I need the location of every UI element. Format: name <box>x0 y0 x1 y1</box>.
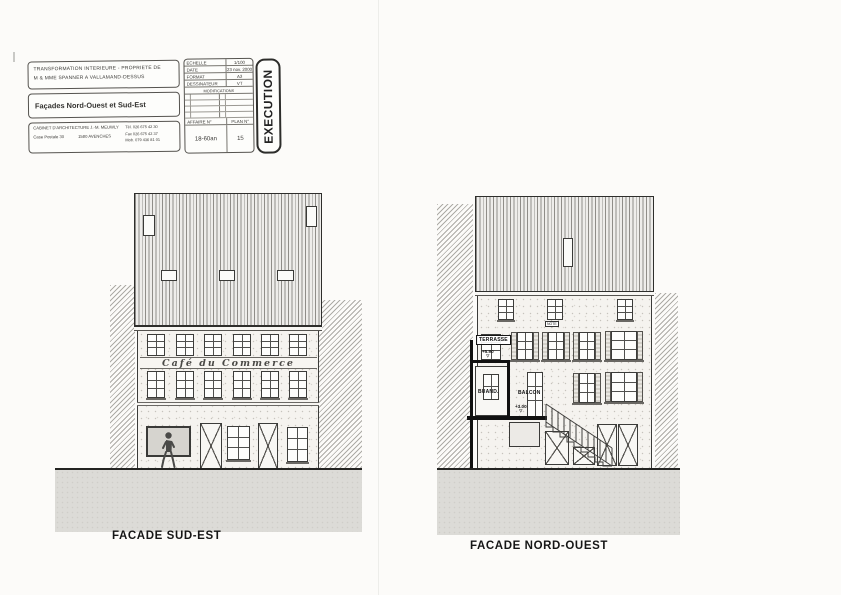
format-label: FORMAT <box>185 74 226 80</box>
scan-mark <box>13 52 15 62</box>
shutter <box>564 332 570 360</box>
scanned-plan-sheet: TRANSFORMATION INTERIEURE - PROPRIETE DE… <box>0 0 841 595</box>
window <box>287 427 308 462</box>
window <box>233 334 251 356</box>
window <box>233 371 251 398</box>
window <box>176 371 194 398</box>
ground-area <box>437 470 680 535</box>
window-sill <box>232 398 252 400</box>
window <box>483 374 499 400</box>
window <box>498 299 514 320</box>
shuttered-window <box>511 332 539 360</box>
draftsman-label: DESSINATEUR <box>185 81 226 87</box>
staircase <box>541 396 615 470</box>
window-sill <box>572 360 602 362</box>
window-sill <box>510 360 540 362</box>
window <box>611 331 637 360</box>
execution-stamp-text: EXECUTION <box>261 69 276 144</box>
date-label: DATE <box>185 67 226 73</box>
shutter <box>533 332 539 360</box>
buanderie-label: BUAND. <box>478 389 499 395</box>
barn-door <box>618 424 638 466</box>
format-value: A3 <box>226 73 253 79</box>
window <box>289 371 307 398</box>
window <box>517 332 533 360</box>
title-block: TRANSFORMATION INTERIEURE - PROPRIETE DE… <box>23 54 282 159</box>
facade-label: FACADE NORD-OUEST <box>470 540 608 552</box>
architect-mob: Mob. 079 436 81 01 <box>125 137 175 144</box>
terrasse-label: TERRASSE <box>476 335 511 345</box>
window <box>261 371 279 398</box>
cafe-sign-text: Café du Commerce <box>162 358 295 369</box>
ground-window <box>509 422 540 447</box>
entrance-door <box>258 423 278 469</box>
roof <box>134 193 322 326</box>
window-sill <box>175 398 195 400</box>
terrasse-level-mark: +5.90 ▽ <box>482 349 494 357</box>
project-line2: M & MME SPANNER A VALLAMAND-DESSUS <box>34 73 174 84</box>
party-wall-hatch <box>655 293 678 470</box>
drawing-title-box: Façades Nord-Ouest et Sud-Est <box>28 92 180 119</box>
shuttered-window <box>605 331 643 360</box>
window <box>579 332 595 360</box>
affaire-value: 18-60an <box>185 125 227 153</box>
window <box>261 334 279 356</box>
roof-window <box>161 270 177 281</box>
roof-window <box>306 206 317 227</box>
window-sill <box>286 462 309 464</box>
architect-name: CABINET D'ARCHITECTURE J.-M. MEUWLY <box>33 124 125 130</box>
architect-address1: Case Postale 30 <box>33 134 64 139</box>
window-sill <box>604 360 644 362</box>
level-mark-icon: ▽ <box>515 409 527 412</box>
entrance-door <box>200 423 222 469</box>
terrasse-floor-line <box>470 360 510 363</box>
drawing-title: Façades Nord-Ouest et Sud-Est <box>35 100 146 110</box>
balcon-level-mark: +3.00 ▽ <box>515 404 527 412</box>
roof-window <box>143 215 155 236</box>
balcony-floor-line <box>467 416 547 420</box>
window-sill <box>203 398 223 400</box>
window-sill <box>541 360 571 362</box>
shuttered-window <box>542 332 570 360</box>
shutter <box>595 332 601 360</box>
window <box>204 371 222 398</box>
facade-label: FACADE SUD-EST <box>112 530 221 542</box>
plan-value: 15 <box>227 125 253 152</box>
execution-stamp: EXECUTION <box>255 58 281 153</box>
window-sill <box>616 320 634 322</box>
scale-value: 1/100 <box>225 59 252 65</box>
shutter <box>637 331 643 360</box>
page-fold-line <box>378 0 379 595</box>
window <box>147 371 165 398</box>
floor-band <box>137 402 319 406</box>
roof-window <box>563 238 573 267</box>
roof-window <box>277 270 294 281</box>
info-table: ECHELLE1/100 DATE23 nov. 2000 FORMATA3 D… <box>183 58 254 154</box>
party-wall-hatch <box>437 204 473 470</box>
window <box>176 334 194 356</box>
architect-box: CABINET D'ARCHITECTURE J.-M. MEUWLY Case… <box>28 121 180 154</box>
party-wall-hatch <box>110 285 135 469</box>
plan-label: PLAN N° <box>226 118 253 124</box>
balcon-label: BALCON <box>518 390 541 396</box>
draftsman-value: VT <box>226 80 253 86</box>
shutter <box>637 372 643 402</box>
roof-window <box>219 270 235 281</box>
level-mark-icon: ▽ <box>482 354 494 357</box>
window-sill <box>288 398 308 400</box>
project-title-box: TRANSFORMATION INTERIEURE - PROPRIETE DE… <box>27 60 179 90</box>
scale-label: ECHELLE <box>184 60 225 66</box>
affaire-label: AFFAIRE N° <box>185 119 226 125</box>
window <box>547 299 563 320</box>
date-value: 23 nov. 2000 <box>226 66 253 72</box>
window-sill <box>226 460 251 462</box>
note-tag: NOTE <box>545 321 559 327</box>
cafe-sign: Café du Commerce <box>140 357 317 369</box>
window <box>617 299 633 320</box>
window <box>204 334 222 356</box>
person-figure <box>158 431 180 469</box>
new-wall-line <box>507 363 510 419</box>
shuttered-window <box>573 332 601 360</box>
party-wall-hatch <box>319 300 362 469</box>
window-sill <box>260 398 280 400</box>
architect-address2: 1580 AVENCHES <box>78 134 111 139</box>
window-sill <box>497 320 515 322</box>
window <box>147 334 165 356</box>
window <box>227 426 250 460</box>
window <box>548 332 564 360</box>
ground-area <box>55 470 362 532</box>
window-sill <box>146 398 166 400</box>
window <box>289 334 307 356</box>
